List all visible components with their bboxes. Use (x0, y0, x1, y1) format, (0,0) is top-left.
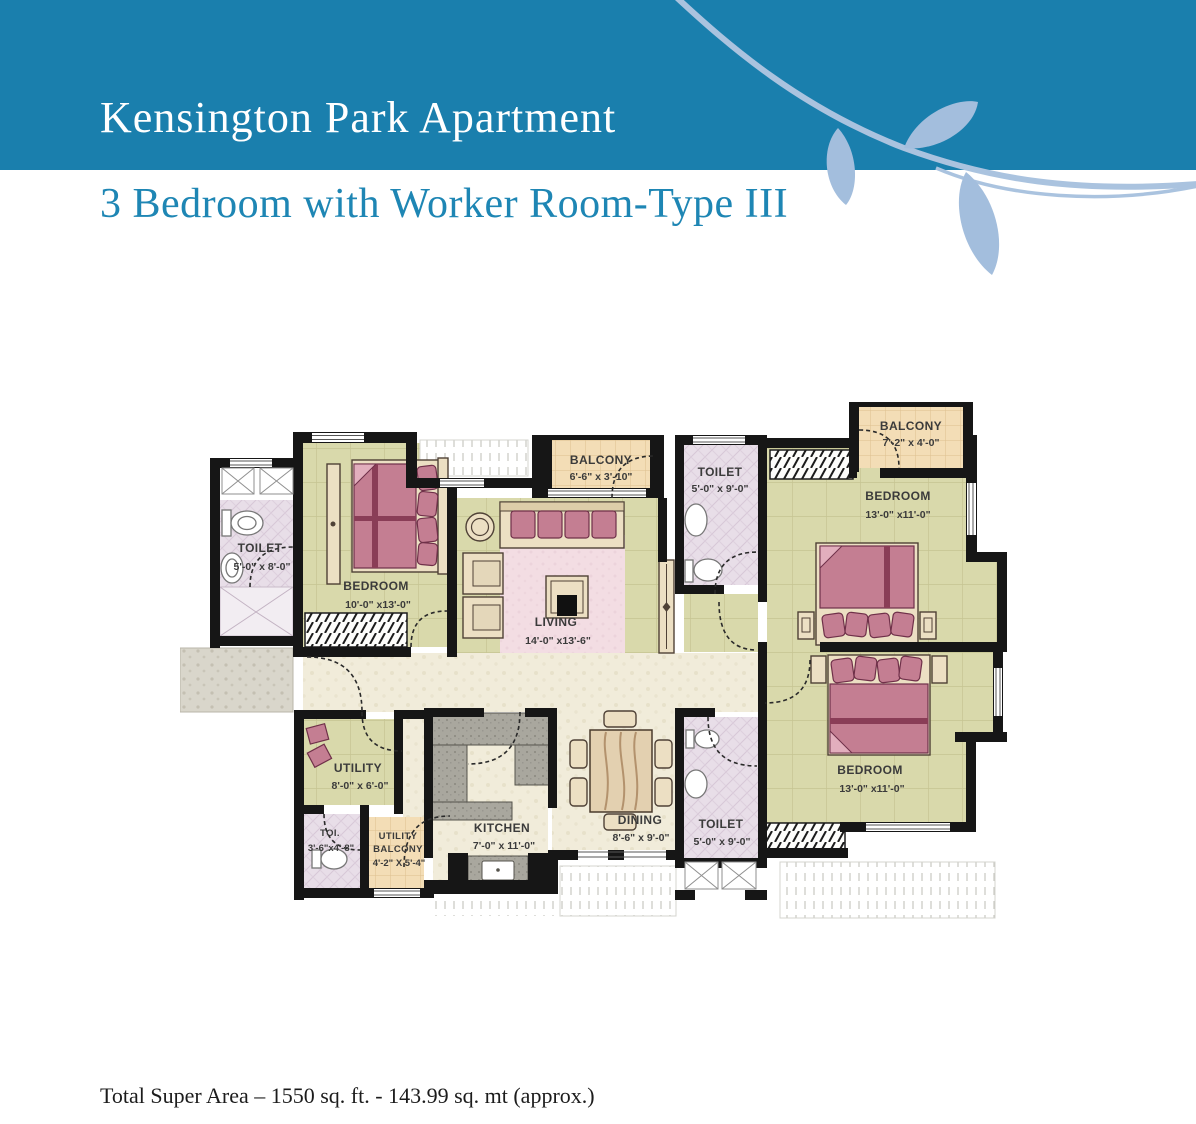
svg-text:5'-0" x 8'-0": 5'-0" x 8'-0" (234, 561, 291, 573)
svg-text:BEDROOM: BEDROOM (343, 579, 408, 593)
svg-text:BEDROOM: BEDROOM (865, 489, 930, 503)
svg-text:KITCHEN: KITCHEN (474, 821, 530, 835)
svg-text:7'-0" x 11'-0": 7'-0" x 11'-0" (473, 840, 535, 852)
foyer-area (220, 587, 293, 636)
svg-text:TOILET: TOILET (699, 817, 744, 831)
svg-text:7'-2" x 4'-0": 7'-2" x 4'-0" (883, 437, 940, 449)
svg-text:4'-2" X 5'-4": 4'-2" X 5'-4" (373, 858, 426, 869)
svg-text:13'-0" x11'-0": 13'-0" x11'-0" (865, 509, 930, 521)
svg-text:6'-6" x 3'-10": 6'-6" x 3'-10" (570, 471, 633, 483)
svg-text:BALCONY: BALCONY (373, 844, 423, 855)
svg-text:LIVING: LIVING (535, 615, 577, 629)
svg-text:14'-0" x13'-6": 14'-0" x13'-6" (525, 635, 591, 647)
wardrobe-1 (305, 613, 407, 647)
total-area-text: Total Super Area – 1550 sq. ft. - 143.99… (100, 1083, 595, 1109)
svg-text:UTILITY: UTILITY (379, 831, 418, 842)
svg-text:UTILITY: UTILITY (334, 761, 382, 775)
svg-text:BALCONY: BALCONY (880, 419, 942, 433)
bed-3 (811, 655, 947, 755)
brochure-page: Kensington Park Apartment 3 Bedroom with… (0, 0, 1196, 1124)
leaf-icon (959, 172, 999, 275)
svg-text:DINING: DINING (618, 813, 662, 827)
page-subtitle: 3 Bedroom with Worker Room-Type III (100, 180, 788, 228)
svg-text:BALCONY: BALCONY (570, 453, 632, 467)
bed-2 (798, 543, 936, 645)
svg-text:TOILET: TOILET (238, 541, 283, 555)
page-title: Kensington Park Apartment (100, 92, 616, 143)
entrance-landing (180, 648, 293, 712)
svg-text:BEDROOM: BEDROOM (837, 763, 902, 777)
svg-text:10'-0" x13'-0": 10'-0" x13'-0" (345, 599, 411, 611)
svg-text:13'-0" x11'-0": 13'-0" x11'-0" (839, 783, 904, 795)
svg-text:5'-0" x 9'-0": 5'-0" x 9'-0" (692, 483, 749, 495)
svg-text:8'-0" x 6'-0": 8'-0" x 6'-0" (332, 780, 389, 792)
wardrobe-2 (770, 450, 853, 479)
sofa (500, 502, 624, 548)
header-band (0, 0, 1196, 170)
svg-text:5'-0" x 9'-0": 5'-0" x 9'-0" (694, 836, 751, 848)
wardrobe-3 (762, 823, 845, 851)
floor-plan: TOILET 5'-0" x 8'-0" BEDROOM 10'-0" x13'… (180, 380, 1040, 920)
svg-text:TOILET: TOILET (698, 465, 743, 479)
side-table (466, 513, 494, 541)
svg-text:3'-6"x4'-8": 3'-6"x4'-8" (308, 843, 354, 854)
tv-unit (546, 576, 588, 618)
sliding-door (659, 560, 674, 653)
svg-text:8'-6" x 9'-0": 8'-6" x 9'-0" (613, 832, 670, 844)
svg-text:TOI.: TOI. (320, 828, 340, 839)
bed-1 (352, 458, 448, 574)
